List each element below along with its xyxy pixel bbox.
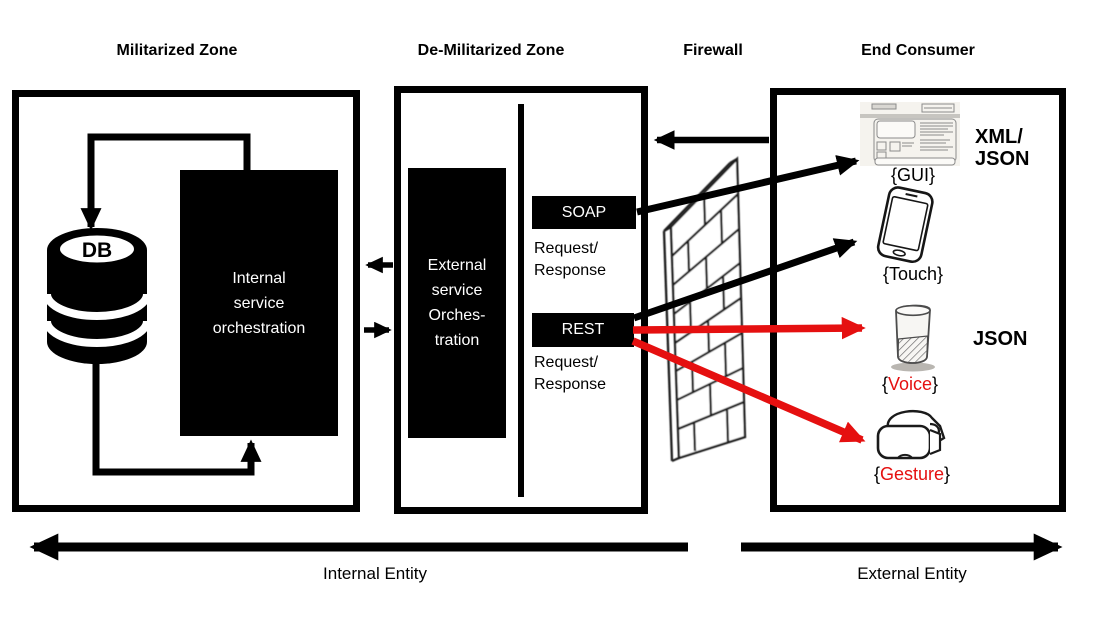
external-orchestration-line1: External [428, 253, 487, 278]
gesture-brace-close: } [944, 464, 950, 484]
militarized-zone-title: Militarized Zone [117, 42, 238, 60]
gesture-channel-label: {Gesture} [874, 464, 950, 485]
dmz-divider-line [518, 104, 524, 497]
external-orchestration-line3: Orches- [429, 303, 486, 328]
external-orchestration-line4: tration [435, 328, 479, 353]
firewall-brick-wall-icon [664, 159, 745, 461]
internal-orchestration-line2: service [234, 291, 285, 316]
headset-front [878, 426, 930, 458]
gesture-channel-name: Gesture [880, 464, 944, 484]
internal-service-orchestration-box: Internal service orchestration [180, 170, 338, 436]
voice-channel-name: Voice [888, 374, 932, 394]
gui-channel-name: GUI [897, 165, 929, 185]
speaker-top [896, 306, 930, 316]
end-consumer-title: End Consumer [861, 42, 975, 60]
soap-caption-line2: Response [534, 260, 606, 282]
gui-icon [860, 102, 960, 166]
gui-brace-close: } [929, 165, 935, 185]
external-entity-label: External Entity [857, 564, 967, 584]
internal-orchestration-line1: Internal [232, 266, 285, 291]
rest-label: REST [562, 321, 605, 339]
xml-json-format-label: XML/ JSON [975, 126, 1029, 170]
firewall-title: Firewall [683, 42, 743, 60]
rest-caption-line2: Response [534, 374, 606, 396]
voice-channel-label: {Voice} [882, 374, 938, 395]
soap-endpoint-box: SOAP [532, 196, 636, 229]
architecture-diagram: Militarized Zone De-Militarized Zone Fir… [0, 0, 1099, 618]
rest-endpoint-box: REST [532, 313, 634, 347]
touch-channel-label: {Touch} [883, 264, 943, 285]
xml-json-line1: XML/ [975, 126, 1029, 148]
external-service-orchestration-box: External service Orches- tration [408, 168, 506, 438]
touch-brace-close: } [937, 264, 943, 284]
headset-side [930, 430, 940, 454]
soap-caption-line1: Request/ [534, 238, 606, 260]
voice-speaker-icon [884, 301, 942, 373]
demilitarized-zone-title: De-Militarized Zone [418, 42, 565, 60]
soap-label: SOAP [562, 204, 606, 222]
rest-request-response-caption: Request/ Response [534, 352, 606, 396]
internal-entity-label: Internal Entity [323, 564, 427, 584]
voice-brace-close: } [932, 374, 938, 394]
touch-channel-name: Touch [889, 264, 937, 284]
database-icon: DB [42, 222, 152, 372]
gesture-vr-headset-icon [874, 404, 950, 466]
external-orchestration-line2: service [432, 278, 483, 303]
db-label: DB [82, 239, 112, 262]
rest-caption-line1: Request/ [534, 352, 606, 374]
soap-request-response-caption: Request/ Response [534, 238, 606, 282]
speaker-fabric-base [898, 336, 928, 363]
internal-orchestration-line3: orchestration [213, 316, 306, 341]
gui-channel-label: {GUI} [891, 165, 935, 186]
json-format-label: JSON [973, 328, 1027, 350]
xml-json-line2: JSON [975, 148, 1029, 170]
